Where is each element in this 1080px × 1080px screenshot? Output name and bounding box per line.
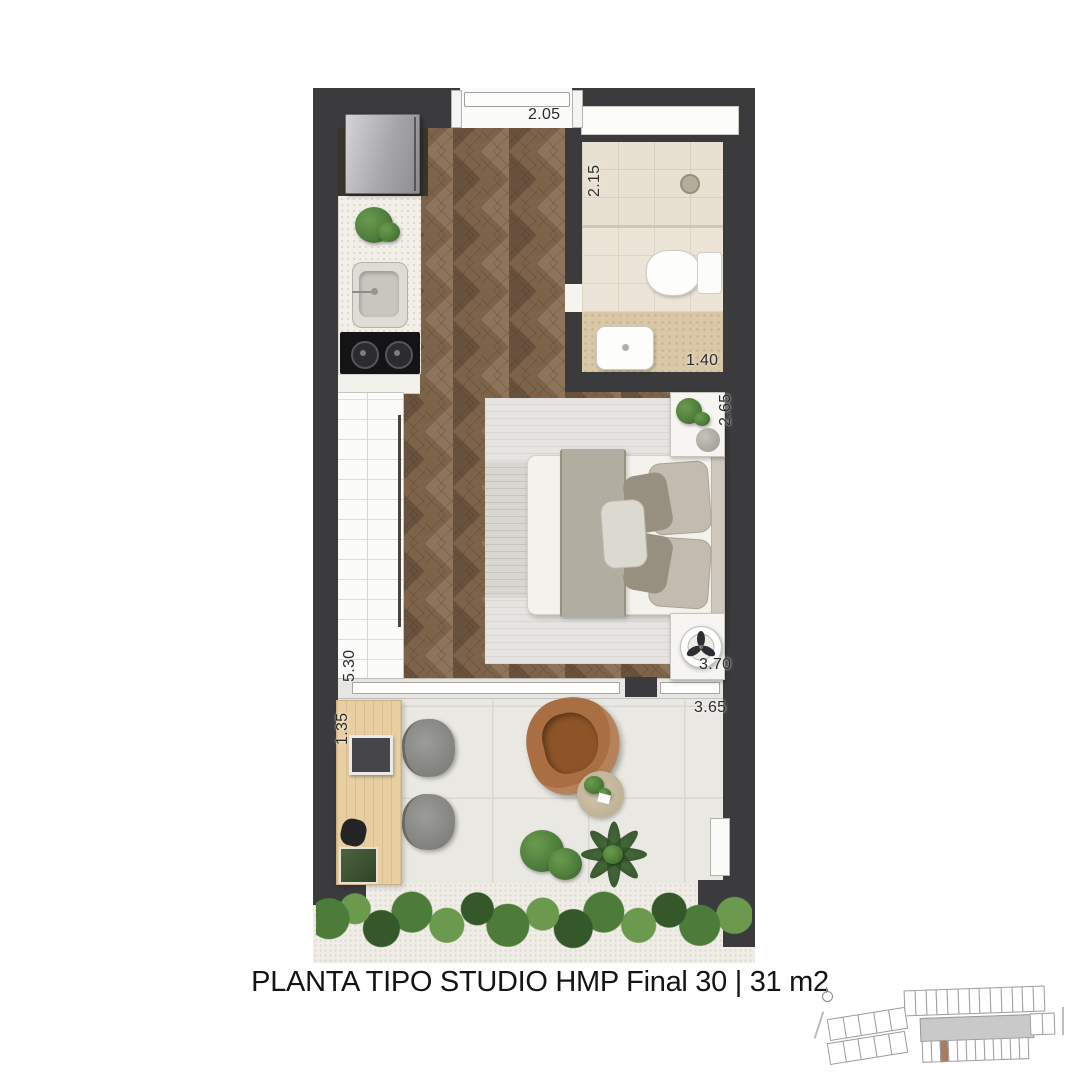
faucet-icon	[371, 288, 378, 295]
north-arrow-icon	[822, 991, 833, 1002]
wall-bath-left-upper	[565, 128, 582, 284]
sliding-door-frame-block	[625, 677, 657, 697]
dim-entry: 2.05	[528, 106, 560, 124]
keyplan-unit	[888, 1007, 908, 1031]
keyplan-unit	[1019, 1037, 1030, 1059]
street-label-left	[814, 1011, 825, 1038]
keyplan-unit	[1042, 1013, 1056, 1035]
shower-drain-icon	[680, 174, 700, 194]
street-label-right	[1062, 1007, 1064, 1035]
headboard	[711, 452, 725, 618]
wardrobe-rail	[398, 415, 401, 627]
dim-balcony-width: 3.65	[694, 699, 726, 717]
monitor-icon	[349, 735, 393, 775]
counter-plant-icon	[378, 222, 400, 242]
shower-partition	[582, 225, 723, 228]
wall-bath-left-lower	[565, 312, 582, 380]
burner-icon	[385, 341, 413, 369]
nightstand-plant-icon	[694, 412, 710, 426]
bathroom-door-opening	[565, 284, 582, 312]
toilet-tank-icon	[697, 252, 722, 294]
keyplan-top-row	[904, 986, 1045, 1017]
keyplan-right-block	[1030, 1013, 1055, 1036]
keyplan-bottom-row	[922, 1037, 1029, 1063]
desk-chair-icon	[401, 793, 456, 851]
bathroom-sink-icon	[596, 326, 654, 370]
keyplan-unit	[888, 1031, 908, 1055]
keyplan-unit	[1033, 986, 1046, 1012]
floorplan-page: 2.05 2.15 1.40 2.65 5.30 3.70 1.35 3.65 …	[0, 0, 1080, 1080]
dim-room-width: 3.70	[699, 656, 731, 674]
sliding-door-glass-right	[660, 682, 720, 694]
dim-wardrobe-wall: 5.30	[341, 650, 359, 682]
entry-jamb-left	[451, 90, 462, 128]
pillow-icon	[600, 499, 649, 570]
entry-jamb-right	[572, 90, 583, 128]
kitchen-sink-icon	[352, 262, 408, 328]
facade-niche	[581, 106, 739, 135]
kitchen-cabinet-end	[338, 374, 420, 394]
sliding-door-glass-left	[352, 682, 620, 694]
palm-plant-icon	[570, 824, 658, 886]
wardrobe	[335, 392, 404, 680]
desk-plant-tray-icon	[339, 847, 378, 884]
dim-bath-depth: 1.40	[686, 352, 718, 370]
dim-bed-wall: 2.65	[717, 394, 735, 426]
ac-niche	[710, 818, 730, 876]
planter-greenery	[316, 889, 752, 955]
dim-bath-width: 2.15	[586, 165, 604, 197]
dim-desk: 1.35	[334, 713, 352, 745]
burner-icon	[351, 341, 379, 369]
entry-door-leaf	[464, 92, 570, 107]
keyplan	[816, 983, 1080, 1080]
wall-left	[313, 88, 338, 905]
fridge-icon	[345, 114, 420, 194]
nightstand-decor-icon	[696, 428, 720, 452]
toilet-icon	[646, 250, 700, 296]
wall-bath-bottom	[565, 372, 723, 392]
